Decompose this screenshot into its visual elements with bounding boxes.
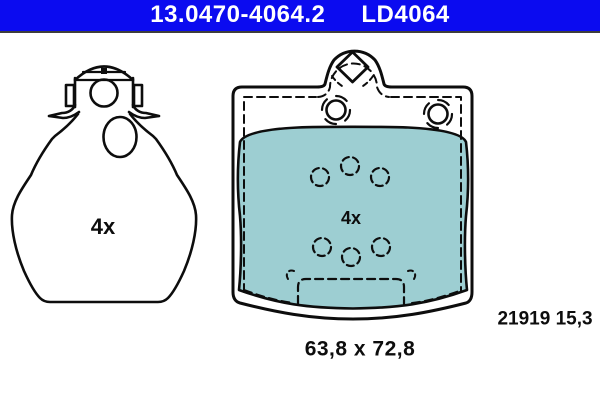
quantity-label-left: 4x xyxy=(91,216,115,238)
diamond-dash-left xyxy=(332,76,342,86)
header-bar: 13.0470-4064.2 LD4064 xyxy=(0,0,600,33)
pad-dimensions-label: 63,8 x 72,8 xyxy=(305,339,416,360)
technical-drawing-page: 13.0470-4064.2 LD4064 xyxy=(0,0,600,400)
hook-right xyxy=(129,105,159,118)
catalog-number: 13.0470-4064.2 xyxy=(150,3,325,27)
left-component-drawing xyxy=(8,52,208,310)
hook-left xyxy=(49,105,79,118)
bushing-left xyxy=(327,101,346,120)
upper-hole xyxy=(91,80,118,107)
side-tab-right xyxy=(134,85,142,106)
wva-thickness-label: 21919 15,3 xyxy=(497,310,592,329)
lower-oval-hole xyxy=(104,117,137,157)
side-tab-left xyxy=(66,85,74,106)
quantity-label-right: 4x xyxy=(341,209,361,227)
box-code: LD4064 xyxy=(361,3,449,27)
bushing-right xyxy=(429,105,448,124)
dome-pin-dot xyxy=(101,68,107,74)
brake-pad-drawing xyxy=(228,40,478,324)
diamond-dash-right xyxy=(363,76,373,86)
